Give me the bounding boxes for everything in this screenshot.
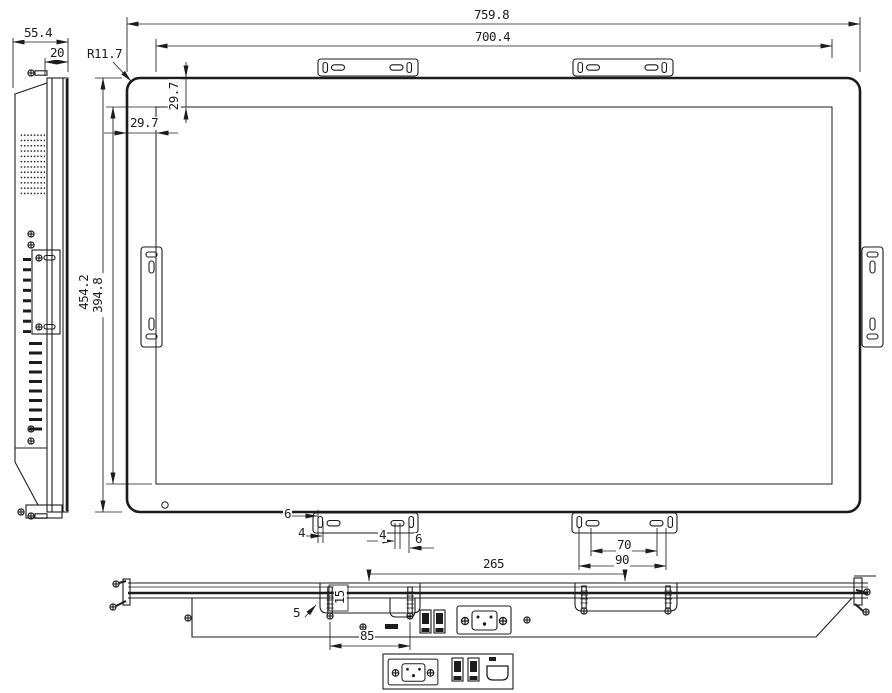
- rear-housing-profile: [192, 598, 852, 637]
- dim-label-top-margin: 29.7: [168, 79, 181, 113]
- dim-label-stud-edge-offset: 5: [292, 607, 301, 620]
- dim-label-corner-radius: R11.7: [86, 48, 123, 61]
- dim-label-front-frame-depth: 20: [49, 47, 65, 60]
- dim-label-stud-spacing: 85: [359, 630, 375, 643]
- dim-label-left-bracket-slot-width: 4: [297, 527, 306, 540]
- dim-label-bracket-center-distance: 265: [482, 558, 505, 571]
- front-view: [127, 59, 883, 533]
- speaker-grille: [19, 134, 45, 198]
- side-view: [15, 70, 68, 519]
- dim-label-left-bracket-edge-offset: 6: [283, 508, 292, 521]
- drawing-linework: [0, 0, 892, 693]
- dim-label-right-bracket-slot-width: 4: [378, 529, 387, 542]
- dim-label-bracket-slot-spacing: 70: [616, 539, 632, 552]
- dim-label-overall-width: 759.8: [473, 9, 510, 22]
- technical-drawing-canvas: 55.4 20 R11.7 759.8 700.4 29.7 29.7 454.…: [0, 0, 892, 693]
- hdmi-port-icon: [487, 666, 508, 680]
- monitor-outer-frame: [127, 78, 860, 512]
- indicator-dot: [162, 502, 168, 508]
- rear-bracket-plate: [32, 250, 60, 334]
- hdmi-port-icon: [385, 624, 398, 629]
- dim-label-stud-length: 15: [334, 586, 347, 608]
- dim-label-glass-width: 700.4: [474, 31, 511, 44]
- hdmi-recess: [390, 598, 415, 617]
- stud-bracket-right: [575, 583, 677, 614]
- display-area: [156, 107, 832, 484]
- dim-label-glass-height: 394.8: [92, 273, 105, 317]
- dim-label-side-depth: 55.4: [23, 27, 53, 40]
- dim-label-right-bracket-edge-offset: 6: [414, 533, 423, 546]
- dim-label-side-margin: 29.7: [129, 117, 159, 130]
- bottom-view: [110, 576, 876, 637]
- dimension-lines: [13, 17, 860, 650]
- io-panel-detail: [383, 654, 513, 689]
- dim-label-bracket-slot-outer-spacing: 90: [614, 554, 630, 567]
- dim-label-overall-height: 454.2: [78, 270, 91, 314]
